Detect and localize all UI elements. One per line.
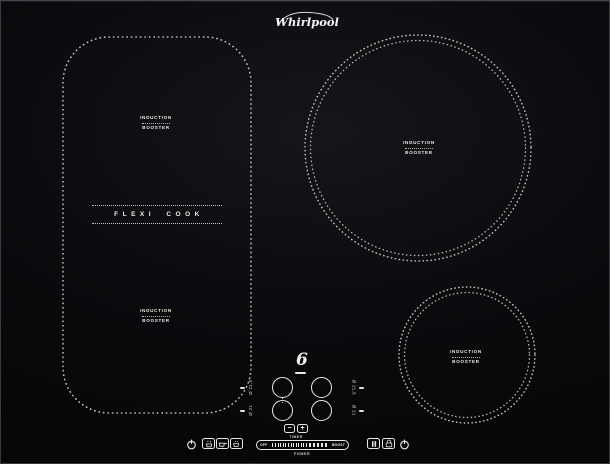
sixth-sense-logo: 6 bbox=[296, 352, 308, 369]
frying-pan-icon bbox=[218, 440, 228, 448]
cooktop-surface: Whirlpool INDUCTION BOOSTER FLEXI COOK I… bbox=[0, 0, 610, 464]
label-dotted-divider bbox=[142, 123, 170, 124]
zone-select-top-left-button[interactable] bbox=[272, 377, 293, 398]
power-tick[interactable] bbox=[301, 443, 302, 448]
power-ticks[interactable] bbox=[269, 443, 330, 448]
standby-icon bbox=[399, 439, 410, 450]
power-label: POWER bbox=[294, 452, 310, 456]
standby-button[interactable] bbox=[186, 439, 197, 450]
timer-label: TIMER bbox=[289, 435, 303, 439]
cook-function-simmering-button[interactable] bbox=[216, 438, 229, 449]
flexi-bottom-label: INDUCTION BOOSTER bbox=[140, 309, 172, 323]
small-zone-label: INDUCTION BOOSTER bbox=[450, 350, 482, 364]
pause-icon bbox=[370, 440, 378, 448]
label-dotted-divider bbox=[142, 316, 170, 317]
lock-icon bbox=[384, 439, 394, 448]
zone-select-top-right-button[interactable] bbox=[311, 377, 332, 398]
power-tick[interactable] bbox=[288, 443, 289, 448]
power-tick[interactable] bbox=[293, 443, 294, 448]
power-tick[interactable] bbox=[306, 443, 307, 448]
pan-size-label-top-right: Ø 21,5 bbox=[351, 377, 356, 397]
power-tick[interactable] bbox=[283, 443, 284, 448]
sixth-sense-underline bbox=[295, 372, 306, 374]
whirlpool-logo: Whirlpool bbox=[270, 7, 344, 35]
power-tick[interactable] bbox=[275, 443, 276, 448]
flexi-zone-outline bbox=[63, 37, 251, 413]
power-slider[interactable]: OFF BOOST bbox=[256, 440, 349, 450]
power-tick-boost[interactable] bbox=[309, 443, 311, 448]
flexi-cook-text: FLEXI COOK bbox=[96, 211, 222, 218]
zone-select-bottom-left-button[interactable] bbox=[272, 400, 293, 421]
power-tick[interactable] bbox=[298, 443, 299, 448]
standby-button[interactable] bbox=[399, 439, 410, 450]
booster-text: BOOSTER bbox=[140, 126, 172, 131]
flexi-dotted-line-bottom bbox=[92, 223, 222, 224]
power-boost-label: BOOST bbox=[332, 443, 345, 447]
booster-text: BOOSTER bbox=[403, 151, 435, 156]
power-tick[interactable] bbox=[291, 443, 292, 448]
zone-marker-dash bbox=[359, 410, 364, 412]
flexi-link-dotted-connector bbox=[282, 398, 283, 403]
power-off-label: OFF bbox=[260, 443, 267, 447]
timer-plus-button[interactable]: + bbox=[297, 424, 308, 433]
logo-wordmark: Whirlpool bbox=[275, 15, 339, 29]
standby-icon bbox=[186, 439, 197, 450]
power-tick[interactable] bbox=[278, 443, 279, 448]
zone-select-bottom-right-button[interactable] bbox=[311, 400, 332, 421]
power-tick[interactable] bbox=[296, 443, 297, 448]
large-zone-label: INDUCTION BOOSTER bbox=[403, 141, 435, 155]
saucepan-icon bbox=[232, 440, 242, 448]
induction-text: INDUCTION bbox=[403, 141, 435, 146]
power-tick[interactable] bbox=[272, 443, 273, 448]
flexi-top-label: INDUCTION BOOSTER bbox=[140, 116, 172, 130]
pan-size-label-bottom-right: Ø 21 bbox=[351, 400, 356, 420]
label-dotted-divider bbox=[452, 357, 480, 358]
zone-outlines bbox=[0, 0, 610, 464]
zone-marker-dash bbox=[359, 387, 364, 389]
cook-function-boiling-button[interactable] bbox=[230, 438, 243, 449]
power-tick[interactable] bbox=[303, 443, 304, 448]
flexi-cook-label: FLEXI COOK bbox=[92, 205, 222, 224]
power-tick-boost[interactable] bbox=[313, 443, 315, 448]
power-tick[interactable] bbox=[280, 443, 281, 448]
zone-marker-dash bbox=[240, 387, 245, 389]
power-tick[interactable] bbox=[285, 443, 286, 448]
induction-text: INDUCTION bbox=[140, 116, 172, 121]
power-tick-boost[interactable] bbox=[317, 443, 319, 448]
induction-text: INDUCTION bbox=[140, 309, 172, 314]
flexi-dotted-line-top bbox=[92, 205, 222, 206]
pan-size-label-top-left: Ø 21,5 bbox=[249, 377, 254, 397]
pause-button[interactable] bbox=[367, 438, 380, 449]
zone-marker-dash bbox=[240, 410, 245, 412]
label-dotted-divider bbox=[405, 148, 433, 149]
steam-pot-icon bbox=[204, 440, 214, 448]
power-tick-boost[interactable] bbox=[325, 443, 327, 448]
pan-size-label-bottom-left: Ø 21 bbox=[249, 400, 254, 420]
induction-text: INDUCTION bbox=[450, 350, 482, 355]
booster-text: BOOSTER bbox=[450, 360, 482, 365]
power-tick-boost[interactable] bbox=[321, 443, 323, 448]
key-lock-button[interactable] bbox=[382, 438, 395, 449]
cook-function-melting-button[interactable] bbox=[202, 438, 215, 449]
timer-minus-button[interactable]: − bbox=[284, 424, 295, 433]
booster-text: BOOSTER bbox=[140, 319, 172, 324]
